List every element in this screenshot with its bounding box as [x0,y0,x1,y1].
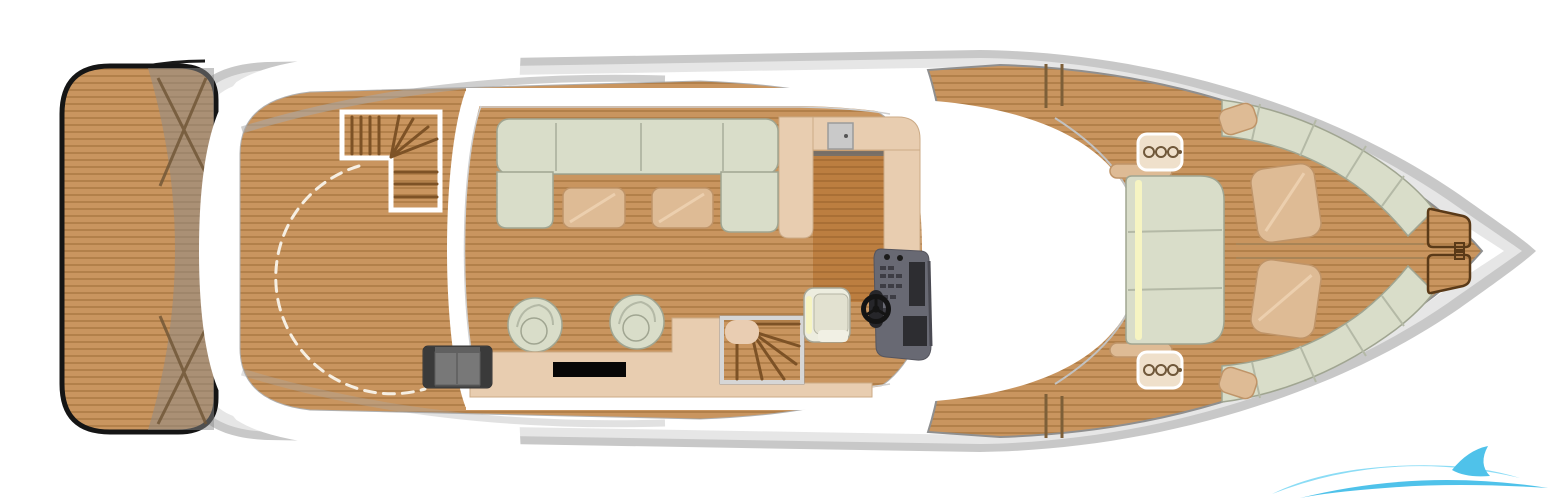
console-knob [884,254,890,260]
console-edge [929,261,931,346]
bench-armrest-left [424,347,435,387]
galley-sink [828,123,853,149]
pod-dot [1178,368,1182,372]
console-display [909,262,925,306]
yacht-deck-plan [0,0,1560,502]
helm-seat [804,288,850,342]
console-knob [897,255,903,261]
wheel-hub [873,306,880,313]
helm-seat-front-pad [818,330,848,342]
bow-cushion-top [1249,162,1323,244]
logo-wave-dark [1300,480,1548,498]
bench-armrest-right [480,347,491,387]
swivel-armchair-left [508,298,562,352]
helm-seat-accent-stripe [806,296,812,334]
galley-counter-right-column [884,150,920,262]
aft-bench-seat [423,346,492,388]
bench-backrest [435,347,480,353]
stairs-landing-pad [725,320,759,344]
companionway-stairs [720,316,804,384]
bow-cushion-bottom [1249,258,1323,340]
pod-dot [1178,150,1182,154]
logo-fin [1452,446,1490,476]
swivel-armchair-right [610,295,664,349]
deck-pod-top [1138,134,1182,170]
sofa-back-band [497,119,778,174]
sink-drain [844,134,848,138]
sofa-right-chaise [721,172,778,232]
galley-counter-left-column [779,117,813,238]
console-panel [903,316,927,346]
deck-pod-bottom [1138,352,1182,388]
watermark-logo [1272,446,1548,498]
sofa-left-chaise [497,172,553,228]
helm-seat-cushion [814,294,848,334]
sun-pad-accent-stripe [1135,180,1142,340]
foredeck-sun-pad [1126,176,1224,344]
deck-plan-canvas [0,0,1560,502]
salon-top-wall [466,97,902,106]
swim-platform [62,66,216,432]
tv-screen [553,362,626,377]
